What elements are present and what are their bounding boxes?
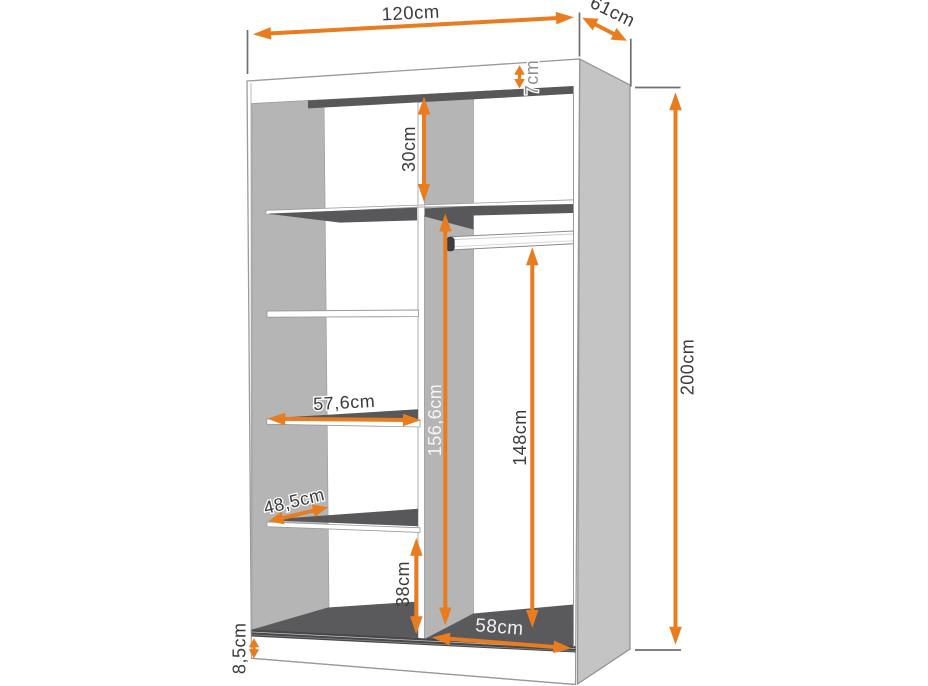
svg-text:156,6cm: 156,6cm <box>425 384 445 457</box>
svg-text:30cm: 30cm <box>399 126 419 172</box>
svg-text:120cm: 120cm <box>381 1 440 25</box>
svg-text:58cm: 58cm <box>474 615 524 640</box>
svg-text:7cm: 7cm <box>522 60 542 96</box>
svg-text:148cm: 148cm <box>510 409 530 466</box>
svg-text:57,6cm: 57,6cm <box>313 391 376 414</box>
svg-text:38cm: 38cm <box>393 561 413 607</box>
svg-text:8,5cm: 8,5cm <box>230 623 250 675</box>
svg-text:200cm: 200cm <box>678 339 698 396</box>
